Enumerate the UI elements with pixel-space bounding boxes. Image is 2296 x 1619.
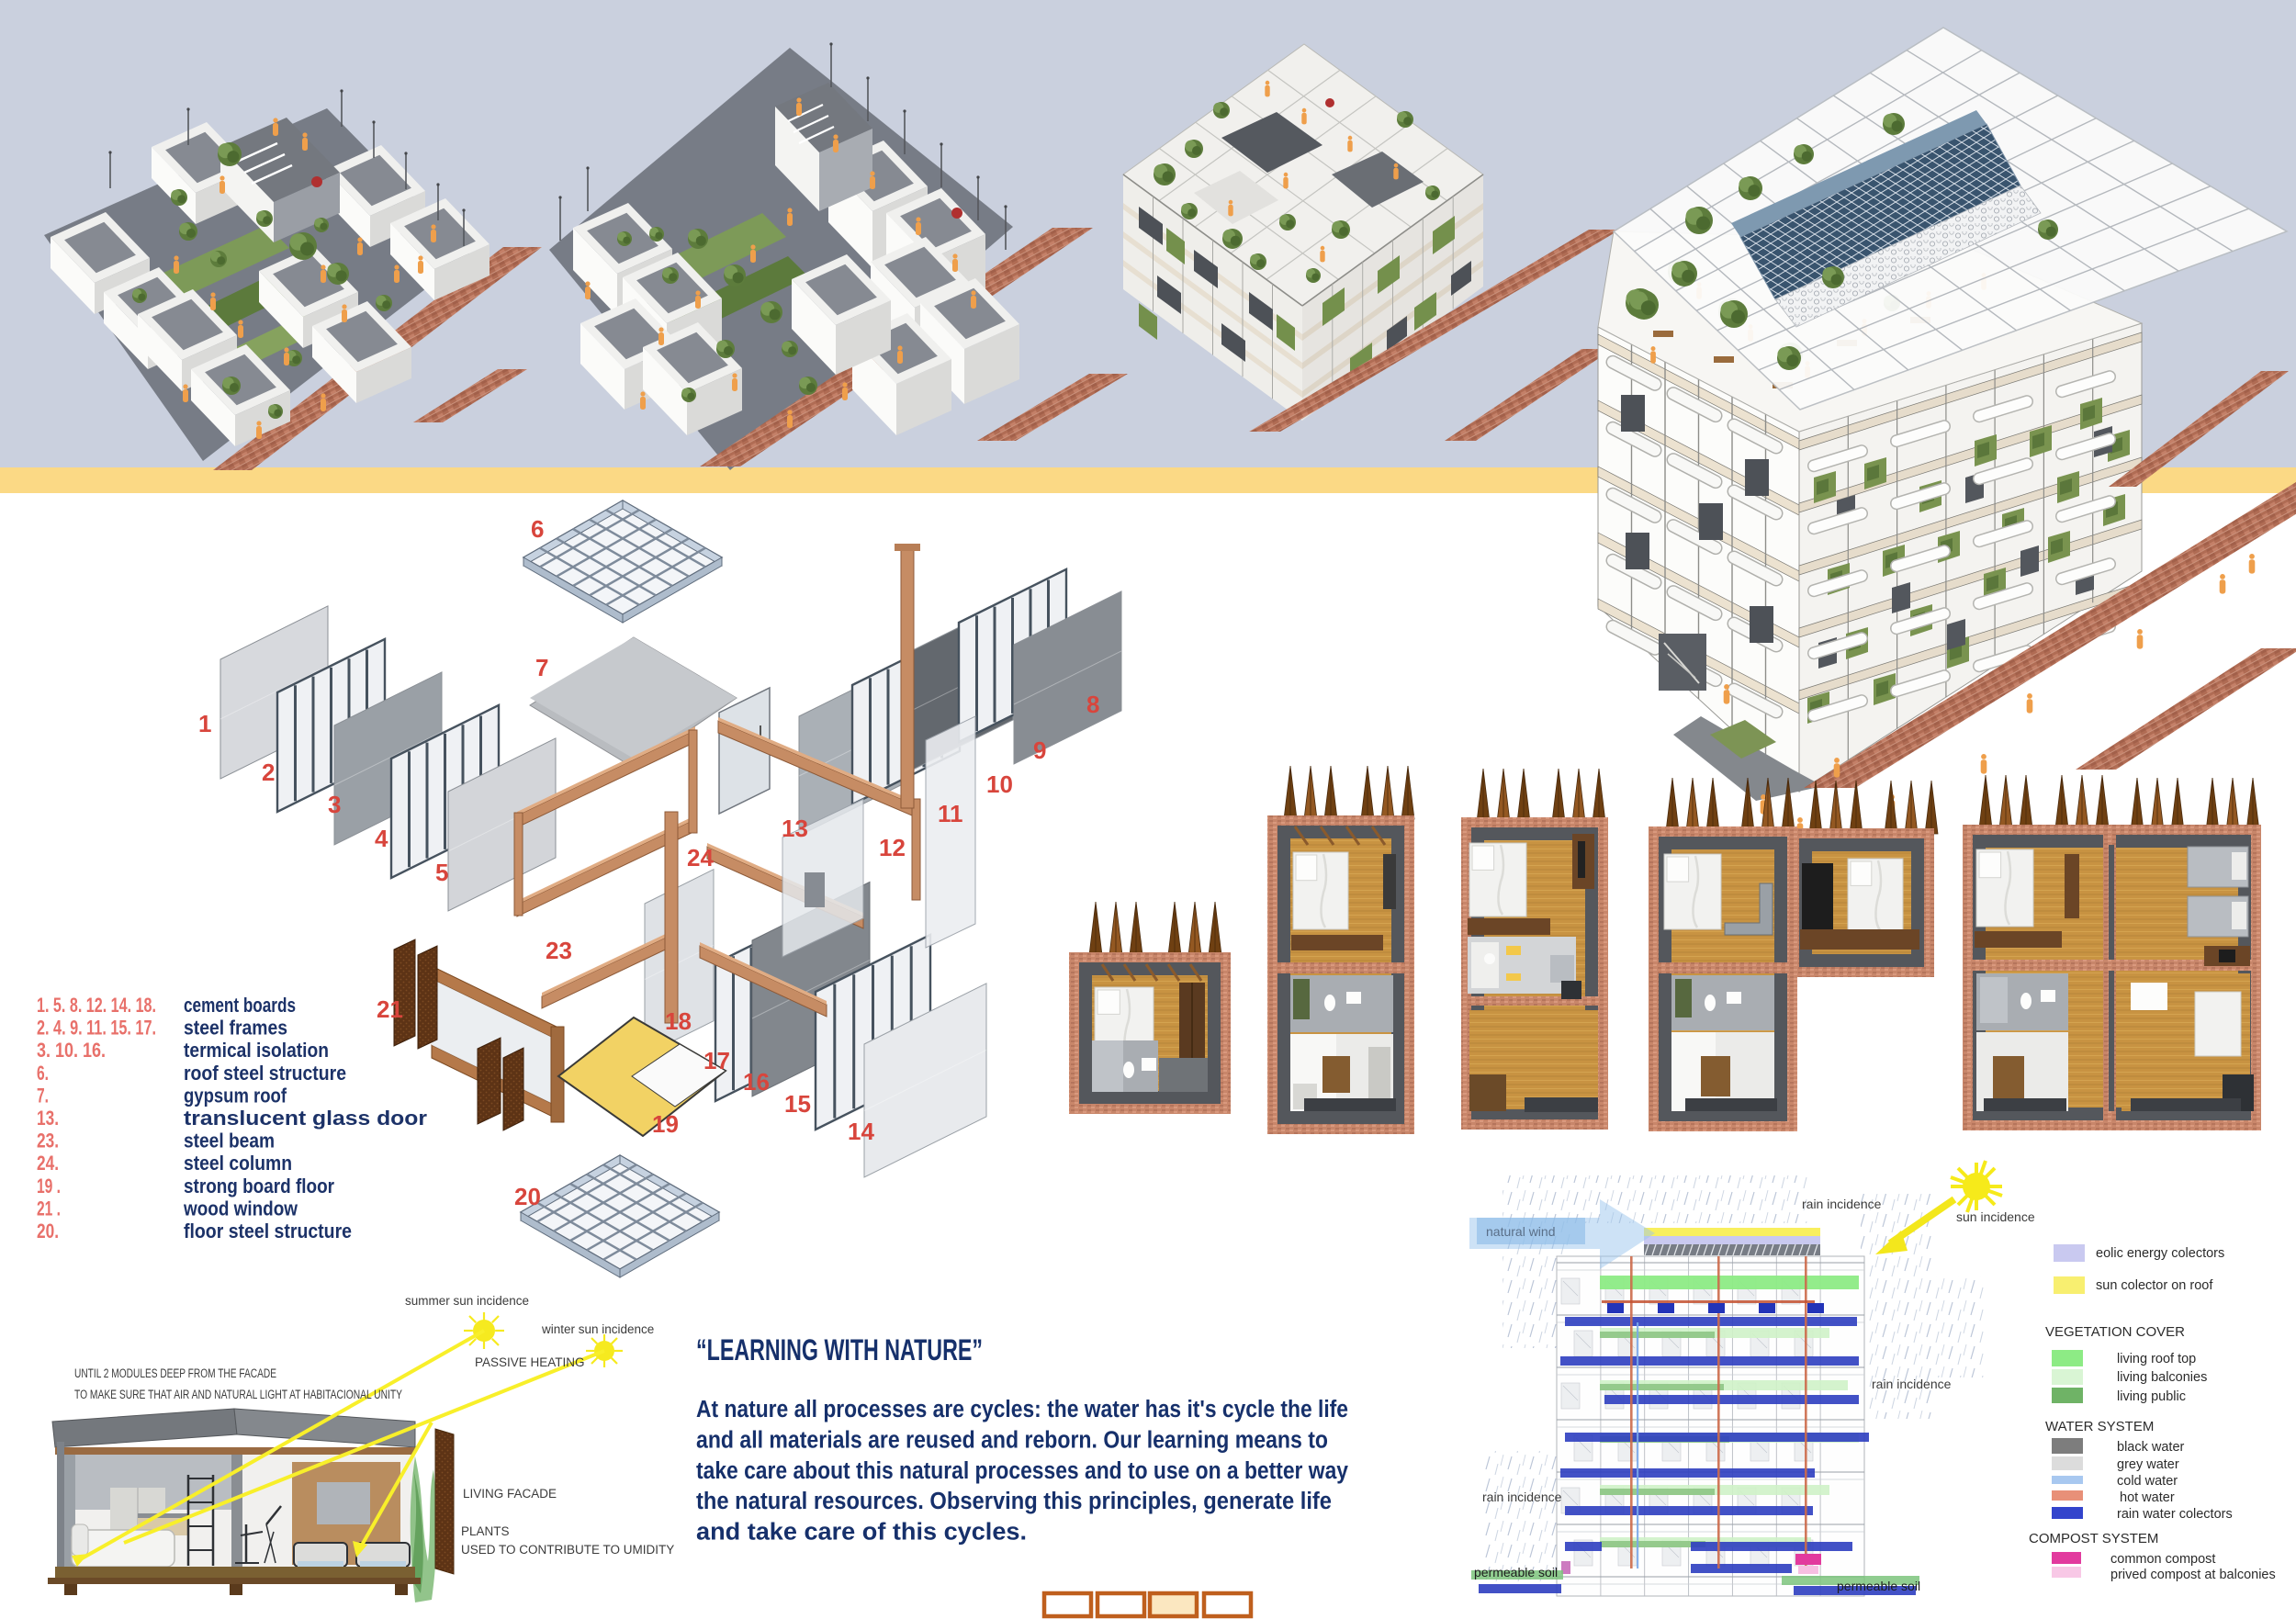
svg-text:floor steel structure: floor steel structure: [184, 1220, 352, 1242]
svg-text:2: 2: [262, 759, 275, 786]
svg-text:hot water: hot water: [2120, 1490, 2175, 1505]
svg-text:18: 18: [665, 1007, 692, 1035]
svg-text:19 .: 19 .: [37, 1175, 61, 1197]
svg-text:the natural resources. Observi: the natural resources. Observing this pr…: [696, 1489, 1332, 1514]
svg-text:20: 20: [514, 1183, 541, 1210]
svg-text:permeable soil: permeable soil: [1837, 1579, 1920, 1593]
svg-text:take care about this natural p: take care about this natural processes a…: [696, 1458, 1349, 1484]
svg-text:At nature all processes are cy: At nature all processes are cycles: the …: [696, 1397, 1348, 1422]
svg-text:8: 8: [1086, 691, 1099, 718]
svg-text:and take care of this cycles.: and take care of this cycles.: [696, 1520, 1027, 1546]
svg-text:19: 19: [652, 1110, 679, 1138]
svg-text:20.: 20.: [37, 1220, 59, 1242]
svg-text:steel beam: steel beam: [184, 1130, 275, 1152]
svg-text:steel column: steel column: [184, 1152, 292, 1175]
svg-text:rain incidence: rain incidence: [1482, 1490, 1562, 1504]
svg-text:21: 21: [377, 995, 403, 1023]
svg-text:1: 1: [198, 710, 211, 737]
svg-text:wood window: wood window: [183, 1197, 298, 1220]
svg-text:rain incidence: rain incidence: [1872, 1377, 1952, 1391]
svg-text:1. 5. 8. 12. 14. 18.: 1. 5. 8. 12. 14. 18.: [37, 994, 156, 1017]
svg-text:rain water colectors: rain water colectors: [2117, 1507, 2233, 1522]
svg-text:rain incidence: rain incidence: [1802, 1197, 1882, 1211]
svg-text:common compost: common compost: [2110, 1552, 2215, 1567]
svg-text:10: 10: [986, 770, 1013, 798]
svg-text:translucent glass door: translucent glass door: [184, 1107, 427, 1130]
svg-text:21 .: 21 .: [37, 1197, 61, 1220]
svg-text:16: 16: [743, 1068, 770, 1096]
svg-text:2. 4. 9. 11. 15. 17.: 2. 4. 9. 11. 15. 17.: [37, 1017, 156, 1040]
svg-text:24.: 24.: [37, 1152, 59, 1175]
svg-text:24: 24: [687, 844, 714, 871]
svg-text:14: 14: [848, 1118, 874, 1145]
svg-text:3. 10. 16.: 3. 10. 16.: [37, 1039, 106, 1062]
svg-text:permeable soil: permeable soil: [1474, 1565, 1558, 1580]
svg-text:grey water: grey water: [2117, 1457, 2179, 1472]
svg-text:12: 12: [879, 834, 906, 861]
svg-text:sun incidence: sun incidence: [1956, 1209, 2035, 1224]
svg-text:living public: living public: [2117, 1389, 2186, 1404]
svg-text:strong board floor: strong board floor: [184, 1175, 334, 1197]
svg-text:and all materials are reused a: and all materials are reused and reborn.…: [696, 1427, 1328, 1453]
svg-text:eolic energy colectors: eolic energy colectors: [2096, 1246, 2224, 1261]
svg-text:cement boards: cement boards: [184, 994, 296, 1017]
svg-text:roof steel structure: roof steel structure: [184, 1062, 346, 1085]
svg-text:prived compost at balconies: prived compost at balconies: [2110, 1568, 2276, 1582]
svg-text:termical isolation: termical isolation: [184, 1039, 329, 1062]
svg-text:LIVING FACADE: LIVING FACADE: [463, 1487, 557, 1501]
svg-text:sun colector on roof: sun colector on roof: [2096, 1278, 2213, 1293]
svg-text:cold water: cold water: [2117, 1474, 2178, 1489]
svg-text:23.: 23.: [37, 1130, 59, 1152]
svg-text:COMPOST SYSTEM: COMPOST SYSTEM: [2029, 1531, 2158, 1546]
svg-text:steel frames: steel frames: [184, 1017, 287, 1040]
svg-text:UNTIL 2 MODULES DEEP FROM THE: UNTIL 2 MODULES DEEP FROM THE FACADE: [74, 1366, 276, 1380]
svg-text:TO MAKE SURE THAT AIR AND NATU: TO MAKE SURE THAT AIR AND NATURAL LIGHT …: [74, 1388, 402, 1401]
svg-text:7: 7: [535, 654, 548, 681]
svg-text:17: 17: [703, 1047, 730, 1074]
svg-text:WATER SYSTEM: WATER SYSTEM: [2045, 1419, 2154, 1434]
svg-text:winter sun incidence: winter sun incidence: [541, 1322, 654, 1336]
svg-text:15: 15: [784, 1090, 811, 1118]
svg-text:7.: 7.: [37, 1084, 49, 1107]
svg-text:natural wind: natural wind: [1486, 1224, 1556, 1239]
svg-text:living roof top: living roof top: [2117, 1352, 2196, 1366]
svg-text:5: 5: [435, 859, 448, 886]
svg-text:4: 4: [375, 825, 388, 852]
svg-text:PASSIVE HEATING: PASSIVE HEATING: [475, 1355, 585, 1369]
svg-text:USED TO CONTRIBUTE TO UMIDITY: USED TO CONTRIBUTE TO UMIDITY: [461, 1543, 674, 1557]
svg-text:living balconies: living balconies: [2117, 1370, 2207, 1385]
svg-text:9: 9: [1033, 736, 1046, 764]
svg-text:summer sun incidence: summer sun incidence: [405, 1294, 529, 1308]
svg-text:6: 6: [531, 515, 544, 543]
svg-text:13: 13: [782, 815, 808, 842]
svg-text:black water: black water: [2117, 1440, 2185, 1455]
svg-text:13.: 13.: [37, 1107, 59, 1130]
svg-text:“LEARNING WITH NATURE”: “LEARNING WITH NATURE”: [696, 1333, 983, 1366]
svg-text:23: 23: [546, 937, 572, 964]
svg-text:11: 11: [938, 800, 963, 827]
svg-text:gypsum roof: gypsum roof: [184, 1084, 287, 1107]
svg-text:PLANTS: PLANTS: [461, 1524, 510, 1538]
svg-text:3: 3: [328, 791, 341, 818]
svg-text:VEGETATION COVER: VEGETATION COVER: [2045, 1324, 2185, 1340]
svg-text:6.: 6.: [37, 1062, 49, 1085]
